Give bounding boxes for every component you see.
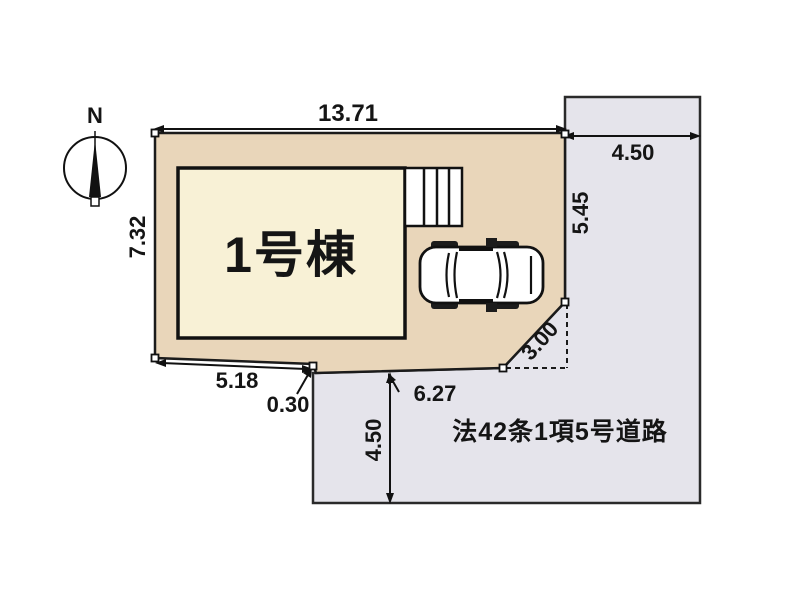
road-label: 法42条1項5号道路 bbox=[452, 417, 668, 446]
svg-text:4.50: 4.50 bbox=[361, 419, 386, 462]
building-label: 1号棟 bbox=[224, 227, 358, 283]
svg-text:5.18: 5.18 bbox=[216, 368, 259, 393]
dim-right-depth: 5.45 bbox=[568, 192, 593, 235]
stairs-icon bbox=[405, 168, 462, 226]
svg-text:0.30: 0.30 bbox=[267, 392, 310, 417]
car-icon bbox=[420, 238, 543, 312]
compass: N bbox=[64, 103, 126, 206]
svg-text:6.27: 6.27 bbox=[414, 381, 457, 406]
compass-needle bbox=[89, 140, 101, 197]
dim-setback: 0.30 bbox=[267, 367, 312, 417]
dim-top-width: 13.71 bbox=[153, 100, 567, 133]
site-plan-svg: 1号棟 13.71 4.50 7.32 bbox=[0, 0, 800, 600]
north-label: N bbox=[87, 103, 103, 128]
site-plan-page: 1号棟 13.71 4.50 7.32 bbox=[0, 0, 800, 600]
svg-text:13.71: 13.71 bbox=[318, 100, 378, 127]
svg-text:4.50: 4.50 bbox=[612, 140, 655, 165]
dim-left-depth: 7.32 bbox=[125, 216, 150, 259]
